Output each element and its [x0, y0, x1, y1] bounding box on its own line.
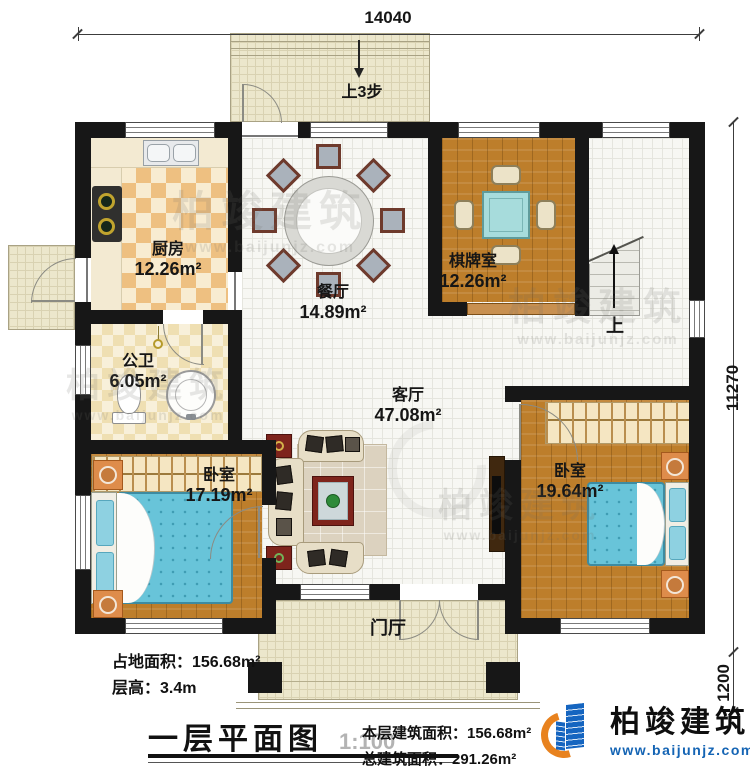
wall-segment [91, 310, 163, 324]
porch-step-line [236, 702, 540, 703]
dining-chair [252, 208, 277, 233]
wall-segment [228, 138, 242, 272]
sink-bowl [173, 144, 196, 162]
room-label-foyer: 门厅 [348, 618, 428, 640]
wall-segment [75, 122, 91, 258]
window [310, 122, 388, 138]
light-pull-knob [153, 339, 163, 349]
wall-segment [689, 338, 705, 634]
stove [92, 186, 122, 242]
wall-segment [478, 584, 505, 600]
total-area-text: 总建筑面积：291.26m² [362, 748, 516, 769]
floor-height-text: 层高：3.4m [112, 674, 196, 698]
dining-chair [380, 208, 405, 233]
chess-chair [491, 165, 521, 185]
room-label-chess: 棋牌室 12.26m² [408, 252, 538, 293]
opening-sill [234, 272, 236, 310]
company-logo-text: 柏竣建筑 www.baijunjz.com [610, 708, 750, 758]
chess-table-inner [489, 198, 523, 232]
logo-building-icon [566, 703, 584, 749]
wall-segment [505, 386, 689, 400]
wall-segment [505, 386, 521, 402]
dining-table-top [296, 188, 362, 254]
wall-segment [203, 310, 242, 324]
room-name: 卧室 [508, 462, 632, 481]
stairs-up-label: 上 [600, 312, 630, 338]
wall-segment [228, 324, 242, 440]
pillow [669, 526, 686, 560]
porch-step-line [231, 41, 429, 42]
wall-segment [75, 618, 125, 634]
nightstand [93, 460, 123, 490]
room-area: 47.08m² [348, 405, 468, 427]
logo-building-icon [556, 721, 565, 750]
company-logo: 柏竣建筑 www.baijunjz.com [540, 702, 750, 764]
wall-segment [262, 558, 276, 634]
room-label-kitchen: 厨房 12.26m² [108, 240, 228, 281]
door-opening-sill [242, 135, 298, 137]
porch-step-line [231, 55, 429, 56]
nightstand [661, 452, 689, 480]
stair-arrow-head-icon [609, 244, 619, 254]
porch-step-line [231, 48, 429, 49]
sink-bowl [147, 144, 170, 162]
room-name: 公卫 [78, 352, 198, 371]
window [300, 584, 370, 600]
wall-segment [215, 122, 242, 138]
chess-chair [454, 200, 474, 230]
wall-segment [540, 122, 602, 138]
window [125, 618, 223, 634]
company-name: 柏竣建筑 [610, 708, 750, 738]
wall-segment [75, 395, 91, 495]
wall-segment [298, 122, 310, 138]
room-name: 棋牌室 [408, 252, 538, 271]
dining-chair [316, 144, 341, 169]
nightstand [661, 570, 689, 598]
room-label-living: 客厅 47.08m² [348, 386, 468, 427]
room-name: 厨房 [108, 240, 228, 259]
steps-up-label: 上3步 [330, 78, 394, 102]
nightstand-lamp [99, 596, 117, 614]
wall-segment [575, 138, 589, 316]
wall-segment [521, 618, 560, 634]
dimension-label-right-lower: 1200 [714, 658, 734, 708]
extension-line [699, 27, 700, 41]
nightstand [93, 590, 123, 618]
room-label-bath: 公卫 6.05m² [78, 352, 198, 393]
wall-segment [276, 584, 300, 600]
room-name: 卧室 [159, 466, 279, 485]
chess-table [482, 191, 530, 239]
window [689, 300, 705, 338]
dimension-line-top [78, 34, 700, 35]
entry-direction-arrow [358, 40, 360, 70]
sofa-cushion [345, 437, 360, 452]
window [458, 122, 540, 138]
room-area: 14.89m² [273, 302, 393, 324]
extension-line [78, 27, 79, 41]
sofa-cushion [325, 435, 344, 453]
room-name: 餐厅 [273, 283, 393, 302]
drawing-title-text: 一层平面图 [148, 714, 323, 758]
wall-segment [650, 618, 689, 634]
room-area: 12.26m² [408, 271, 538, 293]
tv-screen [492, 476, 501, 534]
nightstand-lamp [666, 458, 684, 476]
sofa-cushion [305, 435, 324, 453]
sofa-cushion [329, 549, 348, 567]
burner [98, 218, 115, 235]
chess-chair [536, 200, 556, 230]
pillow [669, 488, 686, 522]
door-opening-sill [86, 258, 88, 302]
plant-icon [326, 494, 340, 508]
entry-arrow-head-icon [354, 68, 364, 78]
room-label-bedroom-right: 卧室 19.64m² [508, 462, 632, 503]
light-pull [158, 326, 159, 340]
coffee-table [312, 476, 354, 526]
porch-inner-line [259, 681, 517, 682]
nightstand-lamp [666, 576, 684, 594]
entrance-porch [258, 600, 518, 700]
window [560, 618, 650, 634]
wall-segment [428, 302, 467, 316]
basin-faucet [186, 414, 196, 420]
room-area: 19.64m² [508, 481, 632, 503]
wall-segment [689, 122, 705, 300]
sofa-cushion [276, 518, 292, 536]
room-label-bedroom-left: 卧室 17.19m² [159, 466, 279, 507]
company-logo-icon [540, 702, 600, 764]
burner [98, 193, 115, 210]
floor-plan-canvas: 上3步 [0, 0, 750, 775]
dining-table [284, 176, 374, 266]
wall-segment [91, 440, 262, 454]
window [602, 122, 670, 138]
console-table [467, 303, 575, 315]
room-name: 门厅 [348, 618, 428, 640]
nightstand-lamp [99, 466, 117, 484]
room-area: 6.05m² [78, 371, 198, 393]
company-url: www.baijunjz.com [610, 742, 750, 758]
pillow [96, 500, 114, 546]
room-area: 17.19m² [159, 485, 279, 507]
room-name: 客厅 [348, 386, 468, 405]
room-area: 12.26m² [108, 259, 228, 281]
porch-column [486, 662, 520, 693]
dimension-label-top: 14040 [338, 8, 438, 28]
window [75, 495, 91, 570]
stair-arrow [613, 250, 615, 308]
wall-segment [388, 122, 458, 138]
wall-segment [75, 302, 91, 345]
floor-area-text: 本层建筑面积：156.68m² [362, 722, 531, 743]
drawing-title: 一层平面图 1:100 [148, 714, 395, 758]
wall-segment [370, 584, 400, 600]
window [125, 122, 215, 138]
sofa-cushion [307, 549, 326, 567]
room-label-dining: 餐厅 14.89m² [273, 283, 393, 324]
kitchen-sink [143, 140, 199, 166]
dimension-label-right: 11270 [723, 355, 743, 421]
land-area-text: 占地面积：156.68m² [112, 648, 261, 672]
porch-step-line [236, 708, 540, 709]
